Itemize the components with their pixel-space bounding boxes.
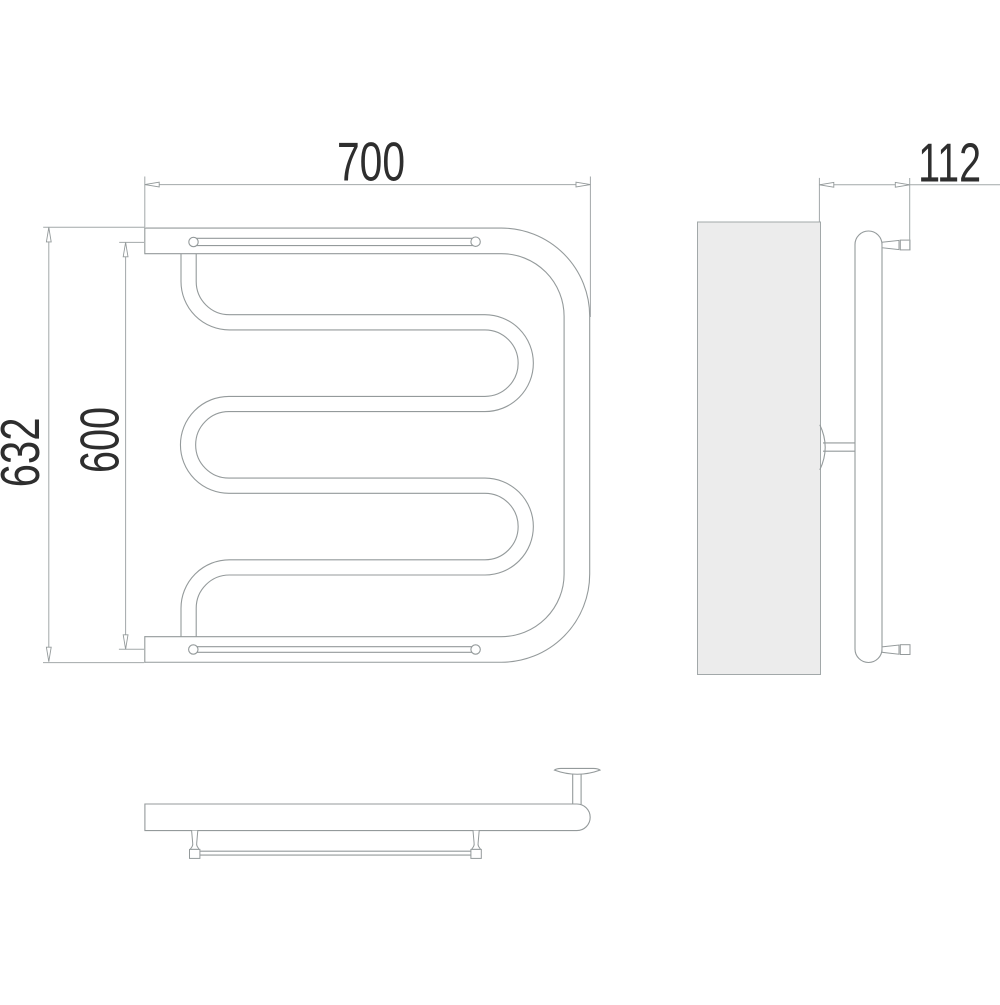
svg-text:700: 700 (337, 131, 405, 193)
svg-text:632: 632 (0, 417, 51, 487)
svg-text:600: 600 (69, 407, 131, 473)
svg-text:112: 112 (918, 132, 981, 194)
